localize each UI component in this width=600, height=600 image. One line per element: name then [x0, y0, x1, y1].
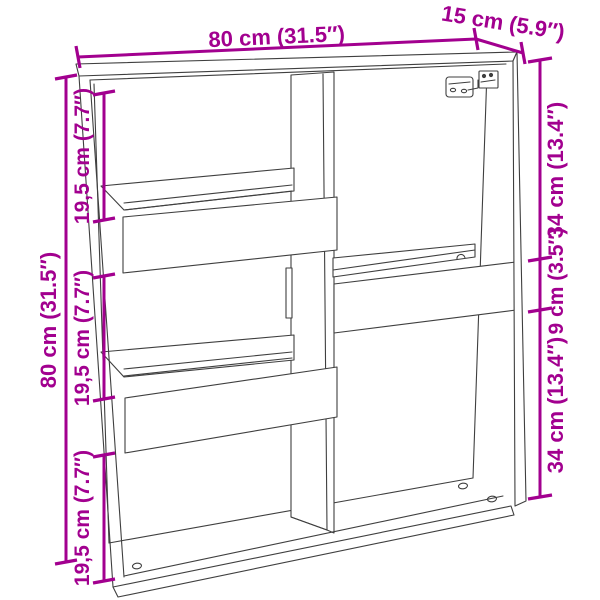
label-left-segment-1: 19,5 cm (7.7″) [71, 88, 94, 224]
screw-hole [458, 483, 468, 490]
center-divider [286, 72, 334, 533]
label-right-segment-3: 34 cm (13.4″) [543, 337, 568, 474]
diagram-canvas: 80 cm (31.5″) 15 cm (5.9″) 80 cm (31.5″)… [0, 0, 600, 600]
label-right-segment-1: 34 cm (13.4″) [543, 102, 568, 239]
mounting-bracket-icon [446, 71, 498, 97]
label-top-depth: 15 cm (5.9″) [440, 1, 567, 45]
right-shelf-rail [333, 244, 516, 333]
label-left-total-height: 80 cm (31.5″) [36, 252, 61, 389]
screw-hole [132, 563, 142, 570]
divider-tab [286, 268, 292, 318]
label-top-width: 80 cm (31.5″) [208, 21, 346, 52]
wall-cabinet-diagram: 80 cm (31.5″) 15 cm (5.9″) 80 cm (31.5″)… [0, 0, 600, 600]
label-right-segment-2: 9 cm (3.5″) [545, 228, 568, 335]
right-side-panel [513, 52, 526, 506]
label-left-segment-3: 19,5 cm (7.7″) [71, 450, 94, 586]
cabinet-drawing [76, 52, 526, 597]
label-left-segment-2: 19,5 cm (7.7″) [71, 270, 94, 406]
